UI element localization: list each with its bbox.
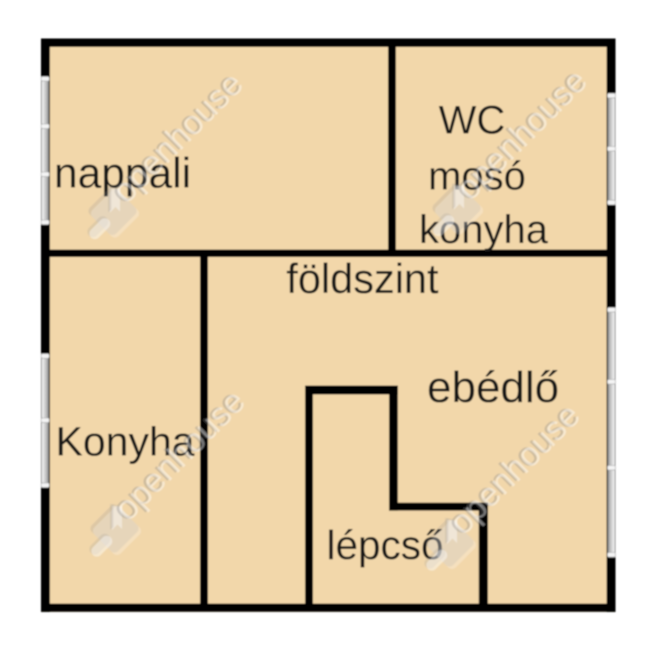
svg-text:földszint: földszint bbox=[286, 255, 439, 302]
svg-text:ebédlő: ebédlő bbox=[427, 363, 559, 412]
